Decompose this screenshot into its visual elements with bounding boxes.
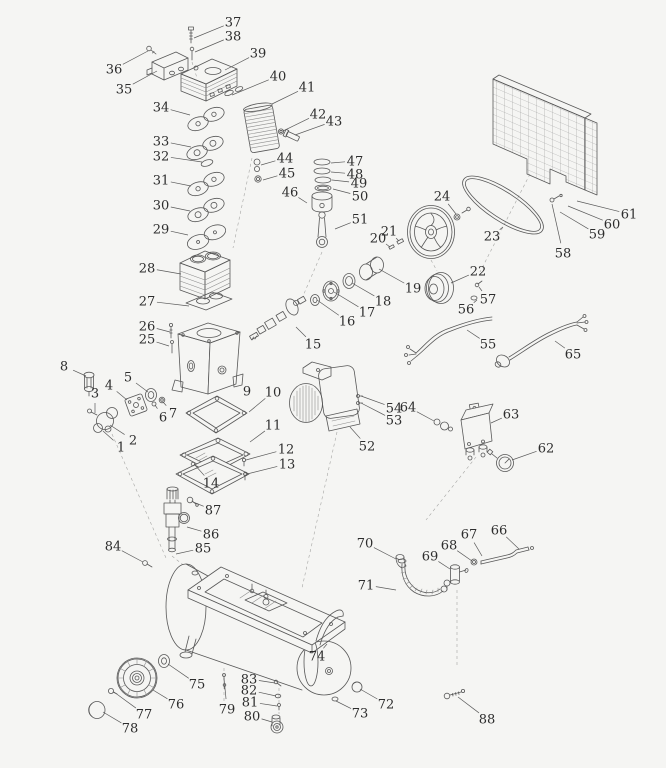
valve-plates-29-34 <box>184 105 229 252</box>
guard-screws <box>550 194 562 202</box>
leader-line-88 <box>458 697 479 713</box>
leader-line-59 <box>560 212 588 229</box>
part-label-23: 23 <box>484 230 501 245</box>
part-label-80: 80 <box>244 710 261 725</box>
leader-line-37 <box>194 26 224 38</box>
leader-line-31 <box>171 182 191 186</box>
motor-pulley <box>425 273 454 304</box>
cylinder-block-28 <box>180 251 230 299</box>
part-label-16: 16 <box>339 315 356 330</box>
finned-head-41 <box>243 101 280 153</box>
connecting-rod-51 <box>317 212 328 248</box>
leader-line-28 <box>157 270 181 274</box>
part-label-8: 8 <box>60 360 68 375</box>
part-label-41: 41 <box>299 81 316 96</box>
part-label-13: 13 <box>279 458 296 473</box>
part-label-62: 62 <box>538 442 555 457</box>
part-label-11: 11 <box>265 419 282 434</box>
leader-line-86 <box>187 527 201 531</box>
leader-line-41 <box>272 91 298 104</box>
part-label-56: 56 <box>458 303 475 318</box>
part-label-60: 60 <box>604 218 621 233</box>
part-label-45: 45 <box>279 167 296 182</box>
leader-line-13 <box>247 466 277 474</box>
leader-line-64 <box>417 412 434 421</box>
leader-line-46 <box>298 197 307 203</box>
part-label-75: 75 <box>189 678 206 693</box>
leader-line-22 <box>451 275 469 283</box>
part-label-72: 72 <box>378 698 395 713</box>
leader-line-51 <box>335 223 351 229</box>
part-label-10: 10 <box>265 386 282 401</box>
leader-line-2 <box>110 425 125 435</box>
leader-line-50 <box>333 189 350 193</box>
part-label-35: 35 <box>116 83 133 98</box>
shaft-keys <box>389 239 404 250</box>
fitting-64 <box>434 419 453 431</box>
part-label-14: 14 <box>203 477 220 492</box>
part-label-43: 43 <box>326 115 343 130</box>
part-label-40: 40 <box>270 70 287 85</box>
part-label-2: 2 <box>129 434 137 449</box>
part-label-42: 42 <box>310 108 327 123</box>
leader-line-80 <box>262 719 272 722</box>
crankcase-bolts-25-26 <box>169 323 173 353</box>
leader-line-38 <box>195 40 224 52</box>
part-label-32: 32 <box>153 150 170 165</box>
leader-line-35 <box>133 71 157 84</box>
part-label-21: 21 <box>381 225 398 240</box>
leader-line-67 <box>474 543 482 556</box>
part-label-78: 78 <box>122 722 139 737</box>
part-label-30: 30 <box>153 199 170 214</box>
leader-line-44 <box>261 161 275 165</box>
part-label-58: 58 <box>555 247 572 262</box>
leader-line-47 <box>331 162 345 163</box>
leader-line-48 <box>331 172 345 173</box>
leader-line-69 <box>438 561 450 569</box>
leader-line-1 <box>103 431 114 440</box>
leader-line-26 <box>157 329 170 332</box>
part-label-26: 26 <box>139 320 156 335</box>
seal-5-ball-6-ring-7 <box>146 389 165 407</box>
part-label-28: 28 <box>139 262 156 277</box>
leader-line-27 <box>157 302 189 306</box>
leader-line-81 <box>260 703 277 706</box>
leader-line-20 <box>386 244 390 247</box>
leader-line-75 <box>168 664 189 678</box>
part-label-83: 83 <box>241 673 258 688</box>
leader-line-54 <box>361 396 385 405</box>
part-label-85: 85 <box>195 542 212 557</box>
part-label-71: 71 <box>358 579 375 594</box>
crankcase <box>172 323 243 394</box>
part-label-55: 55 <box>480 338 497 353</box>
part-label-74: 74 <box>309 650 326 665</box>
part-label-84: 84 <box>105 540 122 555</box>
crankshaft <box>250 296 306 340</box>
part-label-1: 1 <box>117 441 125 456</box>
caster-80 <box>271 715 283 733</box>
nut-68 <box>471 559 477 565</box>
part-label-86: 86 <box>203 528 220 543</box>
piston-rings-47-50 <box>314 159 331 191</box>
fittings-44-45 <box>254 159 261 182</box>
leader-line-72 <box>360 689 377 699</box>
leader-line-78 <box>103 712 121 723</box>
leader-line-85 <box>176 550 193 554</box>
part-label-77: 77 <box>136 708 153 723</box>
leader-line-6 <box>155 405 157 409</box>
part-label-9: 9 <box>243 385 251 400</box>
unloader-valve-1-2-3 <box>88 408 118 433</box>
leader-line-7 <box>163 402 166 406</box>
head-bolt-42-43 <box>278 129 300 142</box>
leader-line-19 <box>379 269 404 283</box>
leader-line-34 <box>171 110 190 115</box>
leader-line-8 <box>73 370 86 376</box>
leader-line-73 <box>336 701 351 709</box>
leader-line-29 <box>171 231 188 235</box>
part-label-51: 51 <box>352 213 369 228</box>
leader-line-18 <box>352 283 374 296</box>
part-label-70: 70 <box>357 537 374 552</box>
part-label-19: 19 <box>405 282 422 297</box>
part-label-63: 63 <box>503 408 520 423</box>
ball-72-drain-73 <box>352 682 362 692</box>
part-label-87: 87 <box>205 504 222 519</box>
leader-line-61 <box>577 201 619 212</box>
leader-line-30 <box>171 207 190 211</box>
part-label-4: 4 <box>105 379 113 394</box>
part-label-18: 18 <box>375 295 392 310</box>
leader-line-55 <box>467 330 480 338</box>
part-label-65: 65 <box>565 348 582 363</box>
part-label-79: 79 <box>219 703 236 718</box>
leader-line-63 <box>491 418 502 423</box>
leader-line-43 <box>295 124 325 135</box>
part-label-68: 68 <box>441 539 458 554</box>
leader-line-60 <box>568 206 603 220</box>
leader-line-15 <box>296 327 306 337</box>
leader-line-4 <box>117 391 127 400</box>
part-label-33: 33 <box>153 135 170 150</box>
exploded-diagram-svg: 1234567891011121314151617181920212223242… <box>0 0 666 768</box>
crank-bearings-16-19 <box>311 257 384 306</box>
part-label-73: 73 <box>352 707 369 722</box>
leader-line-71 <box>376 587 396 590</box>
leader-line-68 <box>457 551 472 561</box>
part-label-7: 7 <box>169 407 177 422</box>
belt-washer-24 <box>454 207 470 220</box>
bolt-88 <box>444 689 464 698</box>
flange-plate-4 <box>124 393 147 416</box>
part-label-27: 27 <box>139 295 156 310</box>
diagram-page: 1234567891011121314151617181920212223242… <box>0 0 666 768</box>
part-label-34: 34 <box>153 101 170 116</box>
leader-line-5 <box>136 383 148 392</box>
leader-line-65 <box>555 341 565 348</box>
leader-line-11 <box>250 431 265 442</box>
part-label-12: 12 <box>278 443 295 458</box>
leader-line-57 <box>479 287 482 291</box>
part-label-15: 15 <box>305 338 322 353</box>
cap-78 <box>89 702 105 719</box>
part-label-38: 38 <box>225 30 242 45</box>
part-label-17: 17 <box>359 306 376 321</box>
leader-line-76 <box>153 690 167 699</box>
leader-line-83 <box>259 681 275 683</box>
leader-line-36 <box>123 51 148 64</box>
leader-line-62 <box>512 451 537 460</box>
part-label-46: 46 <box>282 186 299 201</box>
leader-line-66 <box>506 537 519 549</box>
part-label-5: 5 <box>124 371 132 386</box>
pressure-gauge-62 <box>487 449 513 471</box>
part-label-24: 24 <box>434 190 451 205</box>
head-screws-37-38 <box>189 27 194 60</box>
filter-screw-36 <box>147 46 156 54</box>
leader-line-12 <box>246 452 276 460</box>
cylinder-head-39 <box>181 59 237 101</box>
piston-46 <box>312 192 332 212</box>
part-label-57: 57 <box>480 293 497 308</box>
leader-line-58 <box>552 204 561 243</box>
air-filter-35 <box>147 52 188 80</box>
leader-line-17 <box>334 292 358 307</box>
part-label-76: 76 <box>168 698 185 713</box>
part-label-36: 36 <box>106 63 123 78</box>
part-label-22: 22 <box>470 265 487 280</box>
part-label-88: 88 <box>479 713 496 728</box>
part-label-6: 6 <box>159 411 167 426</box>
part-label-52: 52 <box>359 440 376 455</box>
hose-71 <box>398 559 447 596</box>
part-label-44: 44 <box>277 152 294 167</box>
leader-line-52 <box>350 427 360 439</box>
part-label-39: 39 <box>250 47 267 62</box>
part-label-37: 37 <box>225 16 242 31</box>
leader-line-70 <box>374 548 396 559</box>
wheel-76 <box>117 658 157 698</box>
part-label-3: 3 <box>91 387 99 402</box>
part-label-66: 66 <box>491 524 508 539</box>
leader-line-33 <box>171 143 191 147</box>
belt-guard <box>493 75 597 195</box>
part-label-29: 29 <box>153 223 170 238</box>
part-label-50: 50 <box>352 190 369 205</box>
leader-line-10 <box>249 398 265 412</box>
leader-line-53 <box>361 403 385 415</box>
outlet-pipe-66-67 <box>481 547 534 565</box>
screw-84 <box>143 561 152 567</box>
leader-line-25 <box>157 342 169 346</box>
leader-line-16 <box>317 300 339 315</box>
leader-line-39 <box>225 58 249 70</box>
part-label-69: 69 <box>422 550 439 565</box>
leader-line-45 <box>263 176 277 180</box>
part-label-31: 31 <box>153 174 170 189</box>
leader-line-24 <box>448 204 456 214</box>
leader-line-84 <box>122 551 143 562</box>
part-label-61: 61 <box>621 208 638 223</box>
leader-line-42 <box>283 118 309 131</box>
motor-52 <box>290 362 361 431</box>
part-label-67: 67 <box>461 528 478 543</box>
leader-line-82 <box>259 692 276 696</box>
part-label-25: 25 <box>139 333 156 348</box>
washer-75 <box>159 655 170 668</box>
flywheel <box>408 206 455 259</box>
tee-fitting-69 <box>444 565 469 590</box>
part-label-64: 64 <box>400 401 417 416</box>
